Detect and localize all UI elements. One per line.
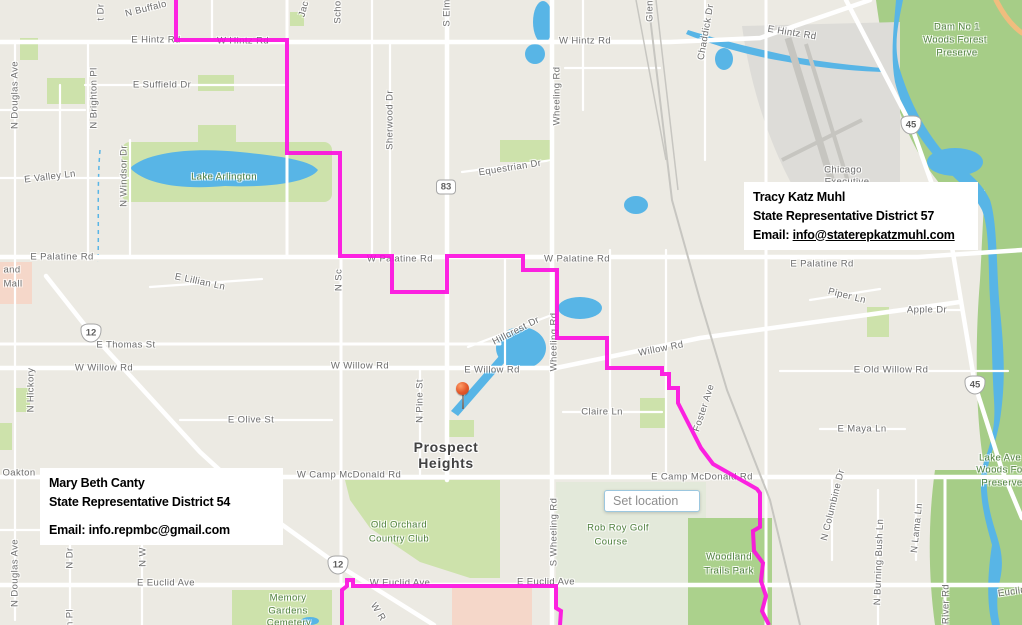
district-54-infobox: Mary Beth Canty State Representative Dis…	[40, 468, 283, 545]
district-57-infobox: Tracy Katz Muhl State Representative Dis…	[744, 182, 978, 250]
email-label: Email:	[753, 228, 789, 242]
rep-title: State Representative District 54	[49, 493, 274, 512]
pin-head	[456, 382, 469, 395]
rep-title: State Representative District 57	[753, 207, 969, 226]
pin-stem	[462, 393, 464, 409]
set-location-input[interactable]	[604, 490, 700, 512]
rep-name: Mary Beth Canty	[49, 474, 274, 493]
set-location-box	[604, 490, 700, 512]
rep-email-row: Email: info@staterepkatzmuhl.com	[753, 226, 969, 245]
rep-email-row: Email: info.repmbc@gmail.com	[49, 521, 274, 540]
email-label: Email:	[49, 523, 85, 537]
map-canvas[interactable]: N Buffalot DrJacSchoE Hintz RdW Hintz Rd…	[0, 0, 1022, 625]
rep-email: info.repmbc@gmail.com	[89, 523, 230, 537]
creek-line	[98, 150, 100, 262]
rep-email-link[interactable]: info@staterepkatzmuhl.com	[793, 228, 955, 242]
rep-name: Tracy Katz Muhl	[753, 188, 969, 207]
